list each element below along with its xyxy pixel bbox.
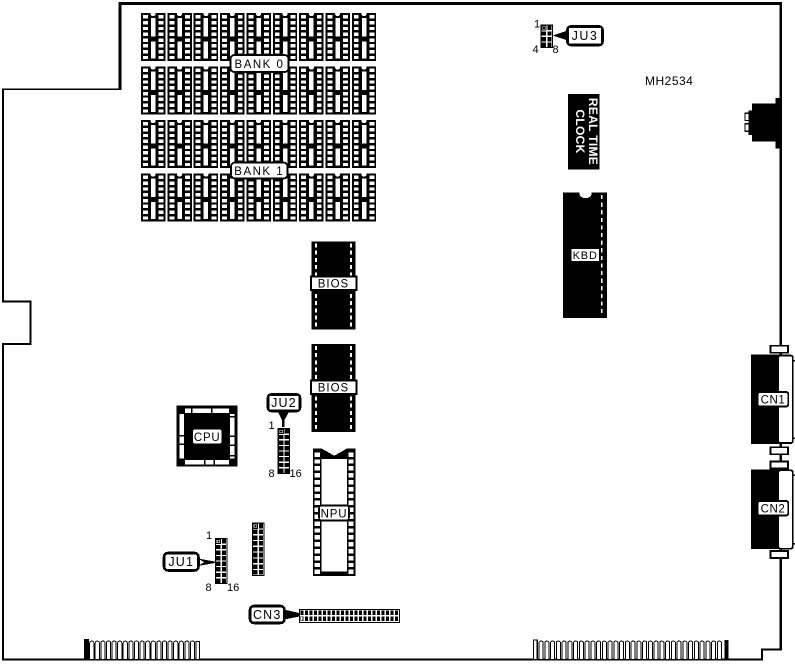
svg-text:1: 1 [269,420,275,432]
svg-text:16: 16 [227,582,239,594]
svg-text:BIOS: BIOS [318,383,349,395]
svg-text:8: 8 [206,582,212,594]
svg-text:CN2: CN2 [761,504,786,516]
svg-text:REAL TIME: REAL TIME [586,98,600,165]
svg-text:4: 4 [533,44,539,56]
svg-text:JU2: JU2 [271,396,297,410]
svg-text:BANK 1: BANK 1 [234,166,284,178]
svg-text:1: 1 [534,19,540,31]
svg-text:BIOS: BIOS [318,279,349,291]
svg-text:CN1: CN1 [761,395,786,407]
svg-text:MH2534: MH2534 [645,74,693,88]
svg-text:CPU: CPU [194,432,221,444]
svg-text:8: 8 [553,44,559,56]
svg-text:NPU: NPU [321,508,348,520]
svg-text:JU3: JU3 [572,29,599,43]
svg-text:BANK 0: BANK 0 [235,59,285,71]
svg-text:1: 1 [206,530,212,542]
svg-text:8: 8 [269,468,275,480]
svg-text:KBD: KBD [573,250,598,262]
svg-text:16: 16 [290,468,302,480]
svg-text:CLOCK: CLOCK [573,109,587,153]
svg-text:JU1: JU1 [168,555,194,569]
svg-text:CN3: CN3 [253,608,282,622]
